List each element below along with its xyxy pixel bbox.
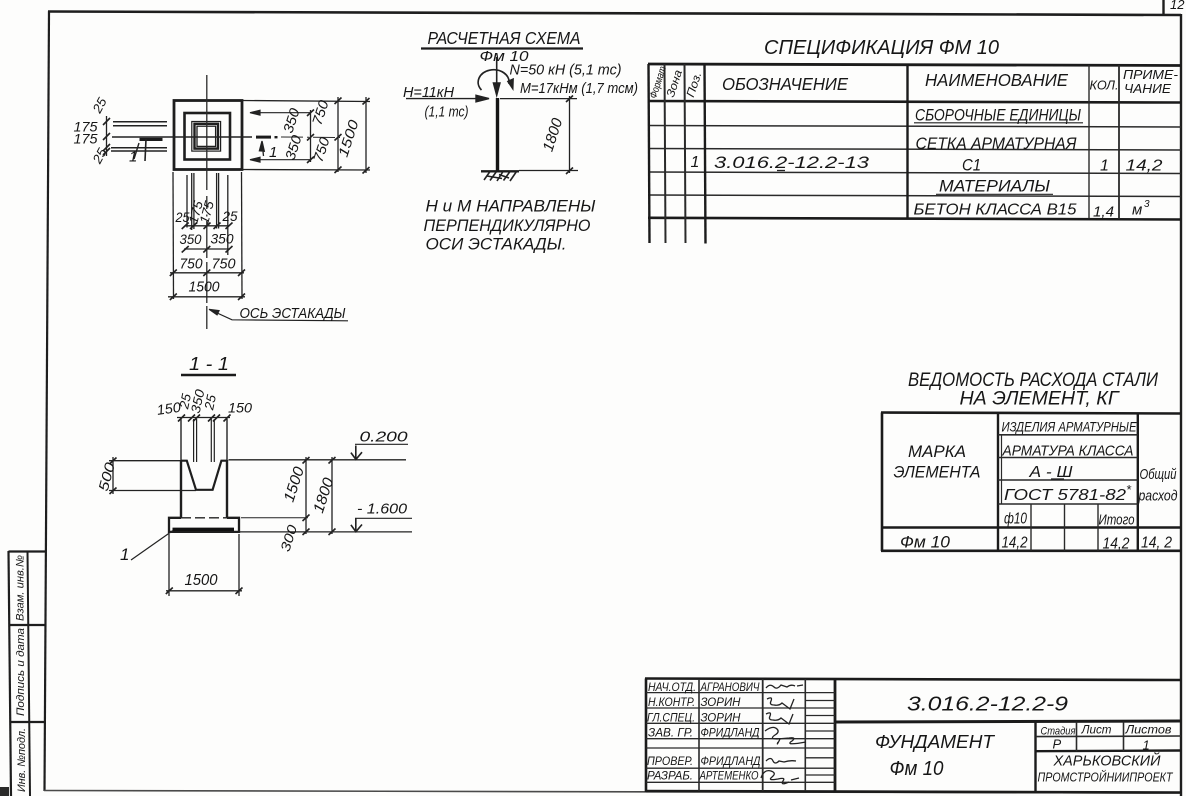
svg-text:750: 750 [212,257,236,273]
svg-text:НА ЭЛЕМЕНТ, КГ: НА ЭЛЕМЕНТ, КГ [960,389,1121,410]
svg-text:1500: 1500 [185,572,218,589]
svg-text:Инв. №подл.: Инв. №подл. [16,728,28,792]
svg-text:750: 750 [180,257,203,273]
svg-text:АГРАНОВИЧ: АГРАНОВИЧ [700,680,761,694]
svg-text:Взам. инв.№: Взам. инв.№ [15,555,27,621]
svg-text:ПЕРПЕНДИКУЛЯРНО: ПЕРПЕНДИКУЛЯРНО [424,217,591,235]
svg-text:Лист: Лист [1080,725,1111,737]
svg-text:1,4: 1,4 [1093,204,1114,221]
svg-text:350: 350 [211,231,234,247]
svg-text:(1,1 тс): (1,1 тс) [425,105,469,121]
svg-text:ЧАНИЕ: ЧАНИЕ [1124,82,1172,96]
svg-text:12: 12 [1170,0,1185,12]
svg-text:1: 1 [691,154,700,171]
svg-text:Н и М НАПРАВЛЕНЫ: Н и М НАПРАВЛЕНЫ [426,198,596,216]
svg-text:ЗОРИН: ЗОРИН [701,711,741,725]
svg-text:Подпись и дата: Подпись и дата [15,628,27,716]
svg-text:1: 1 [129,149,137,166]
svg-text:СБОРОЧНЫЕ ЕДИНИЦЫ: СБОРОЧНЫЕ ЕДИНИЦЫ [915,107,1081,125]
svg-text:МАРКА: МАРКА [908,442,966,461]
svg-text:А - Ш: А - Ш [1028,464,1073,481]
svg-text:1: 1 [120,545,129,564]
svg-text:АРТЕМЕНКО: АРТЕМЕНКО [699,769,759,783]
svg-text:1: 1 [1143,738,1150,753]
svg-text:ФРИДЛАНД: ФРИДЛАНД [701,754,761,768]
svg-text:ЗОРИН: ЗОРИН [701,695,741,709]
svg-text:3: 3 [1144,199,1150,210]
svg-text:- 1.600: - 1.600 [357,501,408,518]
svg-text:14,2: 14,2 [1103,536,1130,553]
svg-text:25: 25 [222,209,238,224]
svg-text:ОБОЗНАЧЕНИЕ: ОБОЗНАЧЕНИЕ [722,74,848,94]
svg-text:расход: расход [1138,489,1178,505]
svg-text:ФУНДАМЕНТ: ФУНДАМЕНТ [875,731,996,752]
svg-text:Итого: Итого [1099,513,1135,529]
svg-text:МАТЕРИАЛЫ: МАТЕРИАЛЫ [939,178,1050,196]
svg-text:150: 150 [228,400,252,416]
svg-text:1500: 1500 [189,279,221,296]
svg-text:БЕТОН КЛАССА В15: БЕТОН КЛАССА В15 [914,202,1077,219]
svg-text:Общий: Общий [1140,467,1177,483]
svg-text:3.016.2-12.2-13: 3.016.2-12.2-13 [714,154,870,172]
svg-text:СЕТКА АРМАТУРНАЯ: СЕТКА АРМАТУРНАЯ [916,135,1078,153]
svg-text:СПЕЦИФИКАЦИЯ ФМ 10: СПЕЦИФИКАЦИЯ ФМ 10 [764,37,999,59]
svg-text:НАИМЕНОВАНИЕ: НАИМЕНОВАНИЕ [925,70,1068,90]
svg-text:НАЧ.ОТД.: НАЧ.ОТД. [648,680,696,694]
svg-text:М=17кНм (1,7 тсм): М=17кНм (1,7 тсм) [520,81,638,97]
svg-text:Фм 10: Фм 10 [890,758,944,780]
svg-text:АРМАТУРА КЛАССА: АРМАТУРА КЛАССА [1002,443,1134,460]
svg-text:0.200: 0.200 [360,429,409,446]
svg-text:14,2: 14,2 [1002,535,1028,552]
svg-text:1: 1 [269,144,277,161]
svg-text:ЗАВ. ГР.: ЗАВ. ГР. [648,726,693,740]
svg-text:175: 175 [74,132,99,147]
svg-text:14, 2: 14, 2 [1141,535,1172,552]
svg-text:ФРИДЛАНД: ФРИДЛАНД [701,726,760,740]
svg-text:РАЗРАБ.: РАЗРАБ. [647,769,693,783]
svg-text:КОЛ.: КОЛ. [1090,79,1119,93]
svg-text:ОСЬ ЭСТАКАДЫ: ОСЬ ЭСТАКАДЫ [240,305,347,322]
svg-text:ГЛ.СПЕЦ.: ГЛ.СПЕЦ. [647,711,695,725]
svg-text:ПРИМЕ-: ПРИМЕ- [1123,68,1178,82]
svg-text:1: 1 [1100,158,1109,175]
svg-text:Н.КОНТР.: Н.КОНТР. [648,695,695,709]
svg-text:350: 350 [180,231,202,247]
svg-text:ЭЛЕМЕНТА: ЭЛЕМЕНТА [894,463,981,482]
svg-text:3.016.2-12.2-9: 3.016.2-12.2-9 [907,694,1068,716]
svg-text:Листов: Листов [1124,725,1171,737]
svg-text:м: м [1132,202,1142,219]
svg-text:Фм 10: Фм 10 [900,534,951,552]
svg-text:ГОСТ 5781-82: ГОСТ 5781-82 [1004,487,1126,504]
svg-text:1 - 1: 1 - 1 [189,354,229,374]
svg-text:ХАРЬКОВСКИЙ: ХАРЬКОВСКИЙ [1053,752,1162,770]
svg-text:ПРОВЕР.: ПРОВЕР. [647,754,693,768]
svg-text:ПРОМСТРОЙНИИПРОЕКТ: ПРОМСТРОЙНИИПРОЕКТ [1038,769,1174,785]
svg-text:ИЗДЕЛИЯ АРМАТУРНЫЕ: ИЗДЕЛИЯ АРМАТУРНЫЕ [1002,420,1138,435]
svg-text:Р: Р [1053,737,1062,752]
svg-text:N=50 кН (5,1 тс): N=50 кН (5,1 тс) [510,63,622,79]
svg-text:ф10: ф10 [1004,511,1027,528]
svg-text:14,2: 14,2 [1126,158,1163,175]
svg-text:С1: С1 [962,157,981,175]
svg-text:ОСИ ЭСТАКАДЫ.: ОСИ ЭСТАКАДЫ. [426,236,567,254]
svg-text:РАСЧЕТНАЯ СХЕМА: РАСЧЕТНАЯ СХЕМА [428,28,581,48]
